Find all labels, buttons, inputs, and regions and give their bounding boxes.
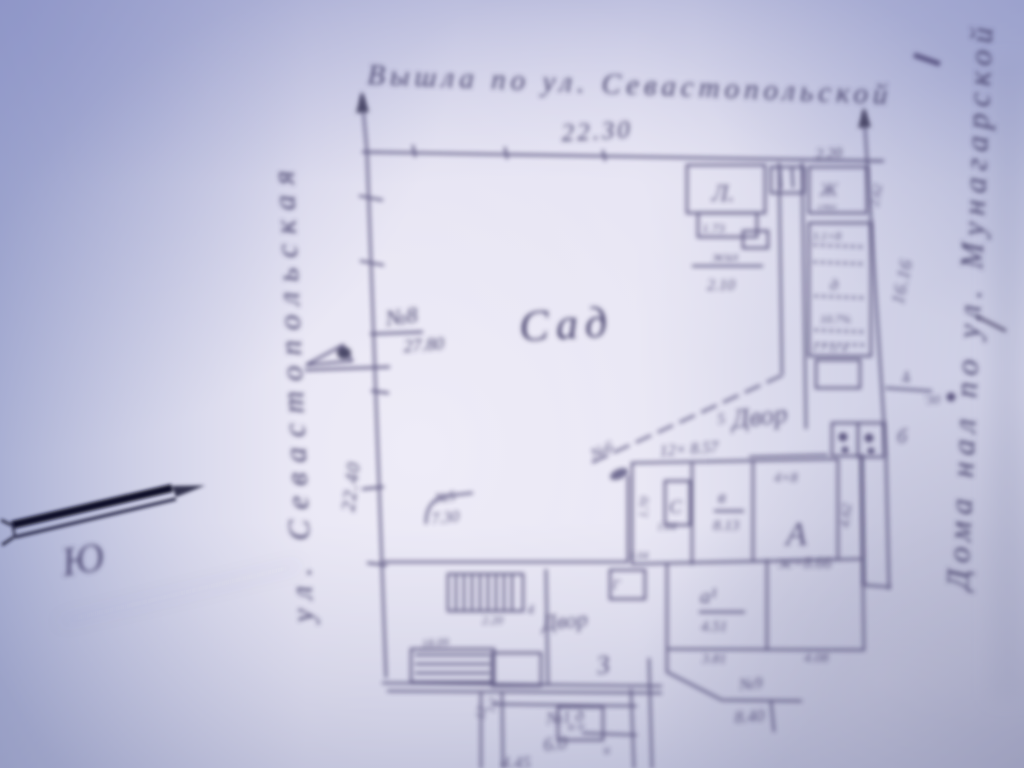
svg-text:4.08: 4.08 [804, 651, 829, 666]
svg-text:2.10: 2.10 [707, 277, 735, 294]
svg-text:3.1×8: 3.1×8 [811, 229, 841, 243]
svg-text:′30: ′30 [924, 392, 940, 407]
svg-text:4.62: 4.62 [838, 503, 855, 529]
svg-text:7.30: 7.30 [431, 508, 461, 528]
svg-text:1.73: 1.73 [702, 221, 725, 236]
svg-text:27.80: 27.80 [403, 333, 445, 356]
svg-text:№9: №9 [738, 675, 764, 694]
svg-text:Л.: Л. [711, 181, 734, 207]
svg-text:Ю: Ю [57, 533, 107, 585]
svg-text:2.20: 2.20 [482, 613, 503, 627]
svg-text:22.30: 22.30 [561, 116, 634, 147]
svg-text:№5: №5 [433, 489, 456, 507]
svg-text:Двор: Двор [539, 606, 588, 635]
svg-text:б: б [897, 426, 908, 448]
svg-text:Ж: Ж [819, 180, 839, 201]
svg-text:А: А [784, 516, 807, 553]
svg-text:Г: Г [611, 578, 621, 593]
svg-text:1.70: 1.70 [636, 496, 652, 518]
svg-text:сто: сто [818, 201, 837, 213]
svg-text:в: в [718, 487, 726, 507]
svg-text:ж=8.66: ж=8.66 [778, 555, 832, 572]
svg-text:а¹: а¹ [700, 584, 717, 608]
svg-text:3.81: 3.81 [701, 652, 727, 667]
svg-text:д: д [830, 277, 838, 294]
svg-text:1 7 11 4: 1 7 11 4 [812, 343, 847, 355]
svg-text:и о: и о [568, 718, 585, 733]
svg-text:1.04: 1.04 [629, 550, 649, 562]
svg-text:Двор: Двор [728, 398, 789, 434]
svg-text:2.20: 2.20 [815, 146, 843, 163]
svg-text:10.7%: 10.7% [820, 312, 851, 326]
svg-text:Сад: Сад [518, 297, 615, 351]
svg-text:6.0: 6.0 [542, 733, 568, 756]
svg-text:18.09: 18.09 [421, 635, 449, 651]
svg-text:8.40: 8.40 [734, 706, 766, 727]
svg-text:жил: жил [712, 250, 738, 265]
svg-text:1.04: 1.04 [657, 521, 677, 533]
svg-text:№8: №8 [383, 302, 419, 331]
svg-text:4×8: 4×8 [774, 471, 797, 486]
svg-text:С: С [669, 497, 682, 518]
svg-text:4.51: 4.51 [701, 619, 727, 635]
svg-text:4: 4 [527, 603, 534, 618]
svg-text:4.45: 4.45 [501, 753, 531, 768]
svg-text:8.13: 8.13 [713, 518, 739, 534]
